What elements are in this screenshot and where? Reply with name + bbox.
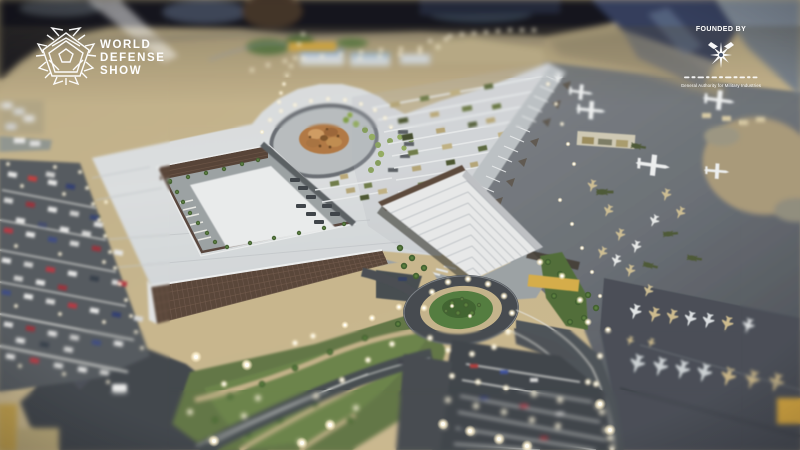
- svg-text:FOUNDED BY: FOUNDED BY: [696, 26, 746, 33]
- svg-text:General Authority for Military: General Authority for Military Industrie…: [681, 83, 761, 88]
- svg-text:WORLD: WORLD: [100, 39, 151, 51]
- svg-text:DEFENSE: DEFENSE: [100, 52, 166, 64]
- svg-text:SHOW: SHOW: [100, 65, 142, 77]
